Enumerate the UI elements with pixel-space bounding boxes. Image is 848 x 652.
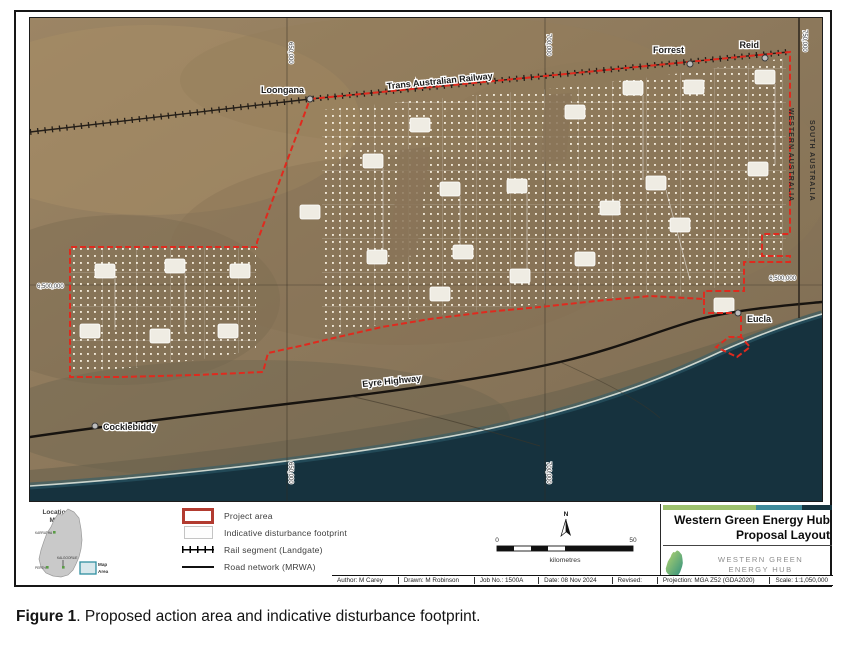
wgeh-logo-line1: WESTERN GREEN [689,555,832,565]
north-arrow-label: N [564,511,569,518]
legend-label: Rail segment (Landgate) [224,545,323,555]
scalebar-start-label: 0 [495,537,499,544]
figure-caption: Figure 1. Proposed action area and indic… [16,608,832,626]
northing-label-right: 6,500,000 [769,276,796,282]
credit-scale: Scale: 1:1,050,000 [769,577,833,584]
map-canvas: Loongana Forrest Reid Eucla Cocklebiddy … [29,17,823,502]
northing-label-left: 6,500,000 [37,284,64,290]
credit-projection: Projection: MGA Z52 (GDA2020) [657,577,760,584]
map-title-line1: Western Green Energy Hub [663,513,832,528]
legend: Project area Indicative disturbance foot… [182,507,457,575]
town-label-forrest: Forrest [653,45,684,55]
scalebar-unit-label: kilometres [550,557,582,564]
map-area-rect [80,562,96,574]
wgeh-logo-line2: ENERGY HUB [689,565,832,575]
easting-label-bottom-1: 650,000 [287,462,293,484]
inset-town-karratha: KARRATHA [35,531,53,535]
north-arrow-icon [561,519,566,536]
town-label-eucla: Eucla [747,314,772,324]
credit-author: Author: M Carey [332,577,388,584]
legend-item-project-area: Project area [182,507,457,524]
figure-caption-text: . Proposed action area and indicative di… [76,608,480,625]
title-block-color-bar [663,505,832,510]
easting-label-top-2: 700,000 [545,34,551,56]
credit-job: Job No.: 1500A [474,577,528,584]
easting-label-bottom-2: 700,000 [545,462,551,484]
easting-label-top-1: 650,000 [287,42,293,64]
legend-label: Indicative disturbance footprint [224,528,347,538]
credits-strip: Author: M Carey Drawn: M Robinson Job No… [332,575,833,586]
footprint-swatch-icon [182,526,214,539]
title-block-divider [663,545,832,546]
credit-revised: Revised: [612,577,648,584]
project-area-swatch-icon [182,508,214,524]
legend-label: Road network (MRWA) [224,562,316,572]
town-label-cocklebiddy: Cocklebiddy [103,422,157,432]
legend-item-footprint: Indicative disturbance footprint [182,524,457,541]
state-label-wa: WESTERN AUSTRALIA [787,108,794,202]
credit-date: Date: 08 Nov 2024 [538,577,602,584]
road-network-swatch-icon [182,566,214,568]
location-inset-map: Location Map KARRATHA KALGOORLIE PERTH M… [34,504,146,582]
credit-drawn: Drawn: M Robinson [398,577,464,584]
figure-caption-number: Figure 1 [16,608,76,625]
map-area-label-line1: Map [98,562,107,567]
inset-town-kalgoorlie: KALGOORLIE [57,556,78,560]
title-block: Western Green Energy Hub Proposal Layout… [660,504,832,582]
legend-item-road: Road network (MRWA) [182,558,457,575]
legend-label: Project area [224,511,273,521]
scalebar-bar [497,546,633,551]
map-area-label-line2: Area [98,569,109,574]
figure-page: Loongana Forrest Reid Eucla Cocklebiddy … [0,0,848,652]
north-arrow-icon [566,519,571,536]
town-label-reid: Reid [739,40,759,50]
easting-label-top-3: 750,000 [801,30,807,52]
wgeh-logo-text: WESTERN GREEN ENERGY HUB [689,555,832,576]
map-title-line2: Proposal Layout [663,528,832,543]
town-label-loongana: Loongana [261,85,305,95]
scalebar-end-label: 50 [629,537,637,544]
scalebar-group: N 0 50 kilometres [480,506,650,566]
rail-segment-swatch-icon [182,546,214,553]
state-label-sa: SOUTH AUSTRALIA [808,120,815,202]
inset-town-perth: PERTH [35,566,46,570]
legend-item-rail: Rail segment (Landgate) [182,541,457,558]
